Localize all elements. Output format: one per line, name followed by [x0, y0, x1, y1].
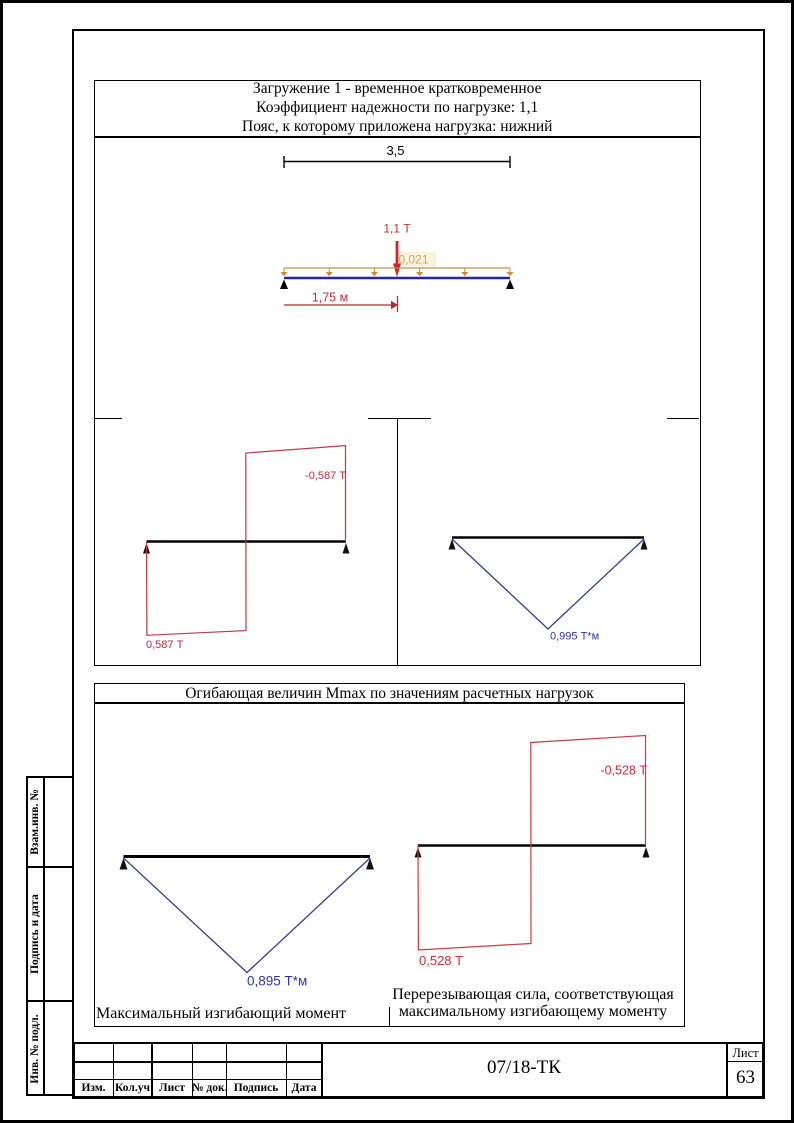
svg-text:0,895 Т*м: 0,895 Т*м — [247, 974, 307, 989]
svg-text:1,1 Т: 1,1 Т — [383, 222, 411, 236]
svg-text:-0,528 Т: -0,528 Т — [600, 764, 647, 778]
svg-text:3,5: 3,5 — [386, 143, 404, 158]
svg-text:0,528 Т: 0,528 Т — [419, 953, 463, 968]
svg-text:0,587 Т: 0,587 Т — [146, 639, 184, 651]
svg-text:0,995 Т*м: 0,995 Т*м — [550, 631, 599, 643]
svg-text:0,021: 0,021 — [399, 253, 429, 267]
svg-text:1,75 м: 1,75 м — [312, 291, 348, 305]
svg-text:-0,587 Т: -0,587 Т — [305, 470, 346, 482]
